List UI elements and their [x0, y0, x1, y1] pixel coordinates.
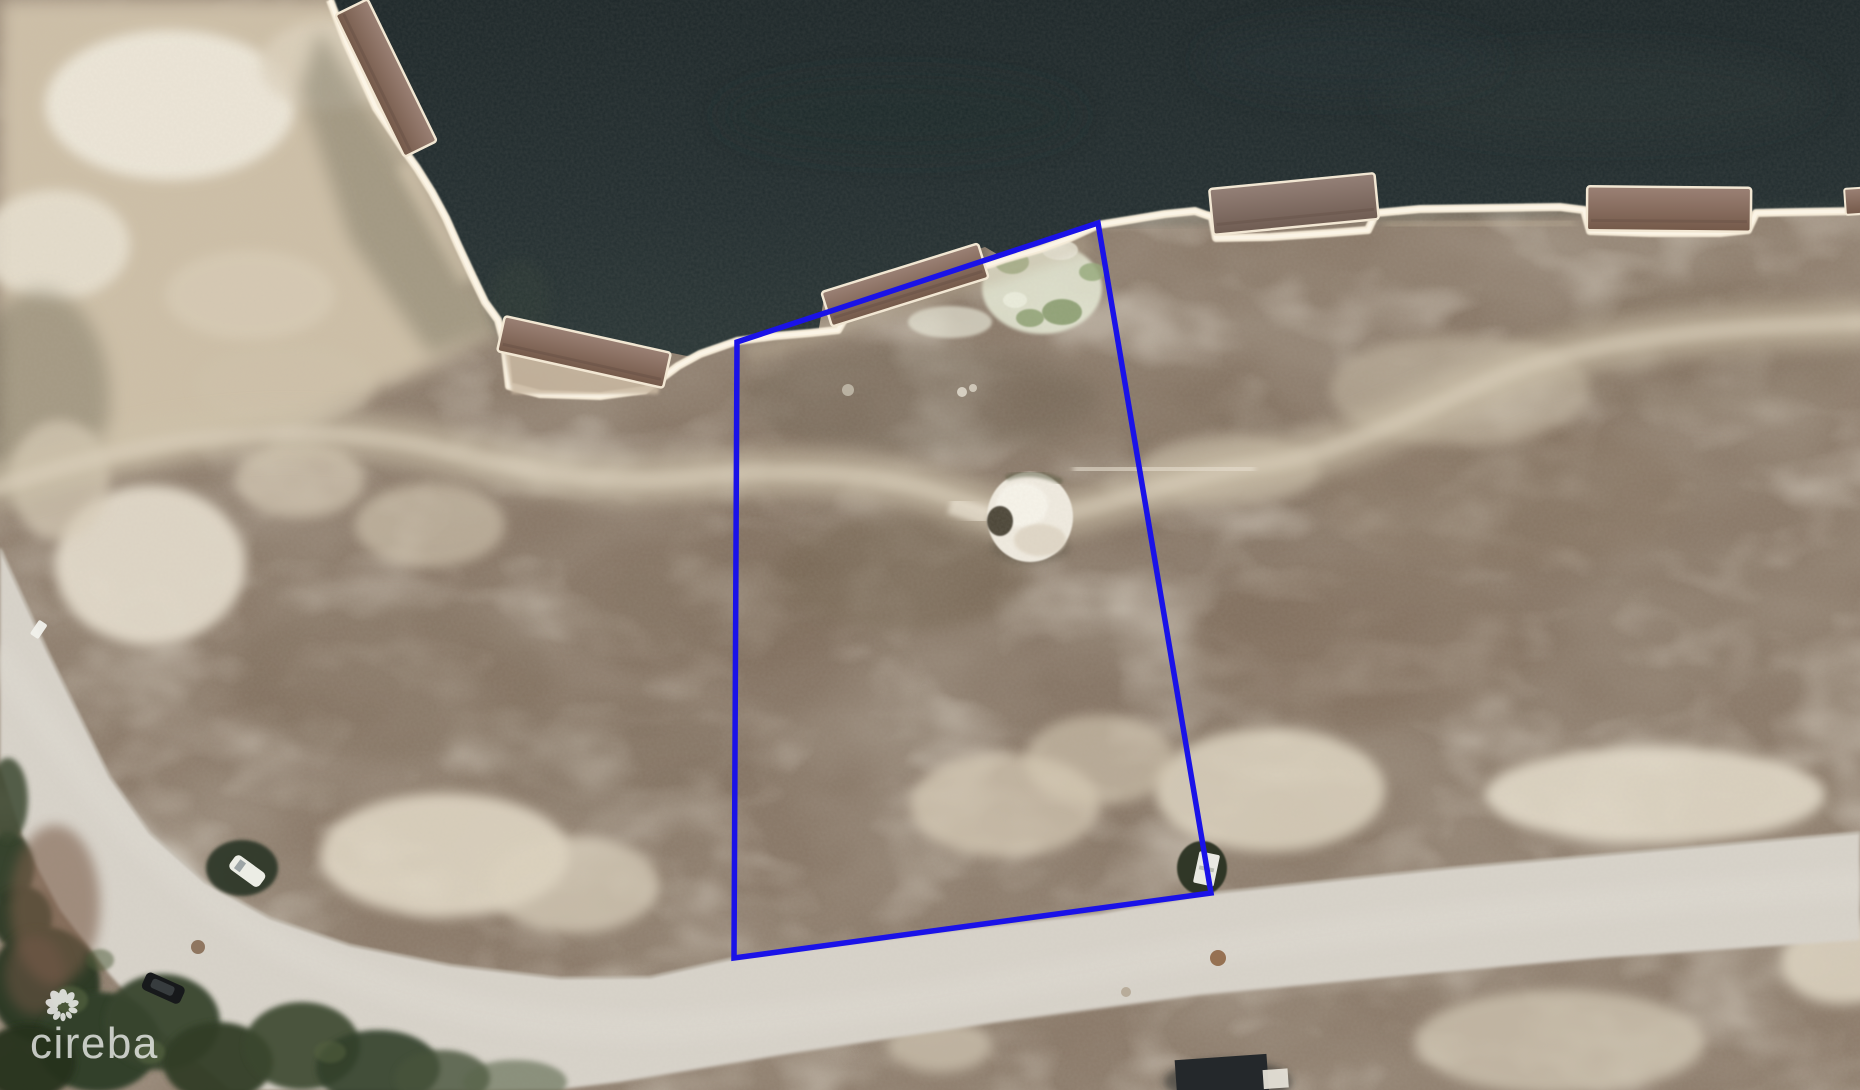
watermark-brand-text: cireba — [30, 1019, 159, 1068]
satellite-map: cireba — [0, 0, 1860, 1090]
road-dot — [191, 940, 205, 954]
tree-highlight — [314, 1041, 346, 1063]
photo-grain — [0, 0, 1860, 1090]
hydrant-dot — [1210, 950, 1226, 966]
dock — [1587, 186, 1751, 231]
tree-highlight — [86, 949, 114, 971]
dock — [1844, 187, 1860, 215]
road-dot — [1121, 987, 1131, 997]
